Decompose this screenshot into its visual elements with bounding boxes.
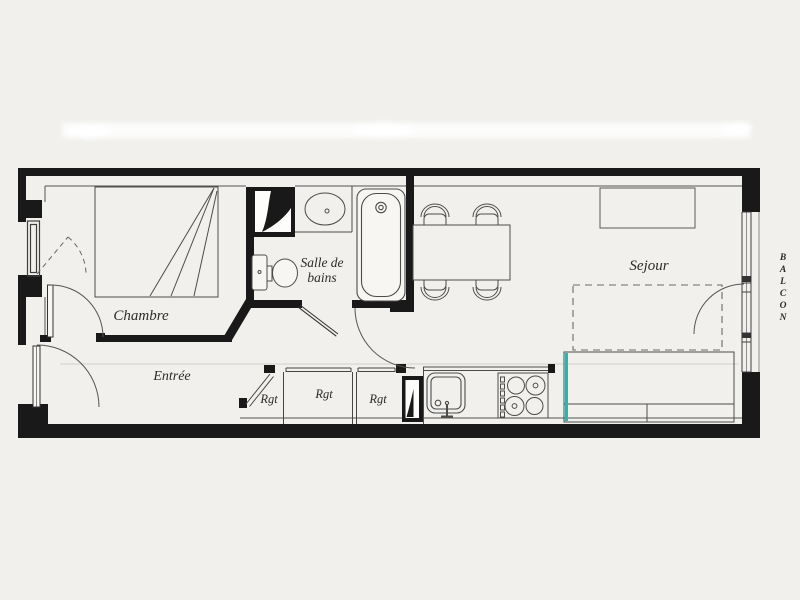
kitchen-duct-shaft	[402, 376, 423, 422]
room-label-chambre: Chambre	[96, 308, 186, 325]
balcony-door-swing	[694, 284, 744, 334]
closet-label-rgt-1: Rgt	[251, 392, 287, 407]
kitchen-counter	[423, 367, 548, 424]
closet-label-rgt-3: Rgt	[360, 392, 396, 407]
window-swing-dashed	[37, 237, 86, 274]
room-label-sejour: Sejour	[604, 258, 694, 275]
dining-table	[413, 225, 510, 280]
room-label-salle-de-bains: Salle de bains	[282, 255, 362, 285]
salle-de-bains-line2: bains	[282, 270, 362, 285]
entry-door	[33, 345, 99, 407]
bathtub	[357, 189, 405, 301]
room-label-entree: Entrée	[127, 369, 217, 385]
washbasin	[295, 186, 352, 232]
balcony-windows	[742, 212, 752, 372]
window-left	[28, 221, 40, 276]
bed	[95, 187, 218, 297]
living-room-door-swing	[355, 308, 415, 368]
closet-label-rgt-2: Rgt	[306, 387, 342, 402]
sofa-bed-outline-dashed	[573, 285, 722, 350]
bathroom-door	[298, 305, 338, 336]
dining-set	[413, 204, 510, 300]
sofa	[564, 352, 734, 422]
scan-smudge-band	[62, 122, 752, 139]
salle-de-bains-line1: Salle de	[282, 255, 362, 270]
wall-cabinet	[600, 188, 695, 228]
floor-plan-drawing	[0, 0, 800, 600]
balcony-label: BALCON	[778, 253, 788, 323]
kitchen-sink	[427, 373, 465, 417]
stove	[498, 373, 548, 418]
floor-plan-page: Chambre Entrée Salle de bains Sejour Rgt…	[0, 0, 800, 600]
duct-shaft	[250, 187, 295, 237]
